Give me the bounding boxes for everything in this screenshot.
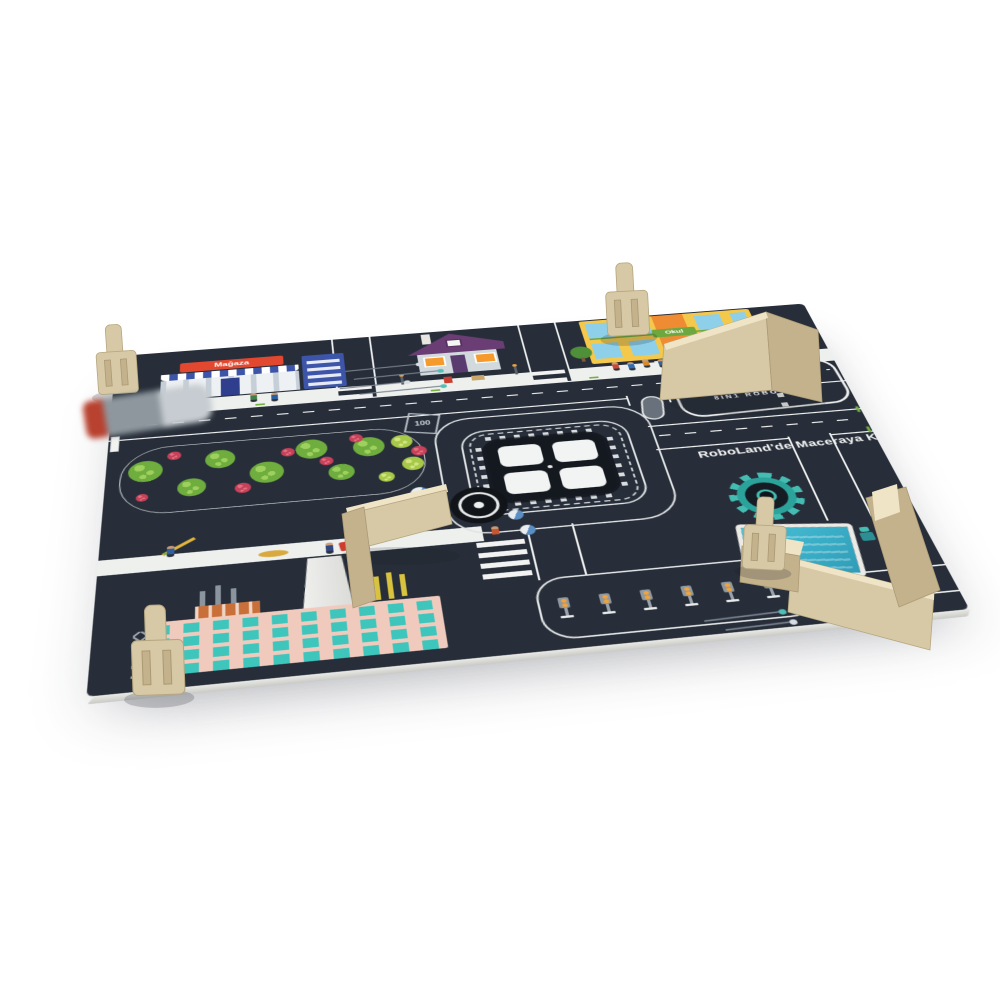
decor-layer (86, 304, 969, 697)
road-edge-dash (589, 376, 599, 378)
pie-marker (507, 509, 525, 520)
pie-marker (519, 524, 537, 535)
circuit-trace (345, 364, 418, 372)
playmat-3d: REX8 8IN1 ROBOT KIT RoboLand'de Maceraya… (86, 304, 969, 697)
person-figure (627, 362, 636, 371)
person-figure (756, 565, 768, 577)
person-figure (611, 362, 620, 371)
circuit-trace (725, 621, 793, 631)
road-edge-dash (379, 532, 390, 535)
person-figure (167, 546, 175, 558)
product-photo-scene: REX8 8IN1 ROBOT KIT RoboLand'de Maceraya… (0, 0, 1000, 1000)
pie-marker (420, 501, 440, 514)
person-figure (361, 539, 370, 551)
road-edge-dash (255, 403, 265, 405)
road-edge-dash (866, 426, 872, 432)
person-figure (271, 392, 278, 401)
road-edge-dash (716, 366, 726, 368)
circuit-trace (354, 370, 441, 380)
person-figure (491, 526, 501, 537)
playmat: REX8 8IN1 ROBOT KIT RoboLand'de Maceraya… (86, 304, 969, 697)
circuit-trace (340, 381, 407, 389)
person-figure (325, 542, 333, 554)
circuit-trace (704, 611, 782, 622)
road-edge-dash (431, 389, 441, 391)
road-edge-dash (855, 406, 861, 412)
person-figure (250, 393, 257, 402)
pie-marker (410, 486, 430, 499)
person-figure (641, 359, 650, 368)
playmat-surface: REX8 8IN1 ROBOT KIT RoboLand'de Maceraya… (86, 304, 969, 697)
person-figure (657, 359, 666, 368)
